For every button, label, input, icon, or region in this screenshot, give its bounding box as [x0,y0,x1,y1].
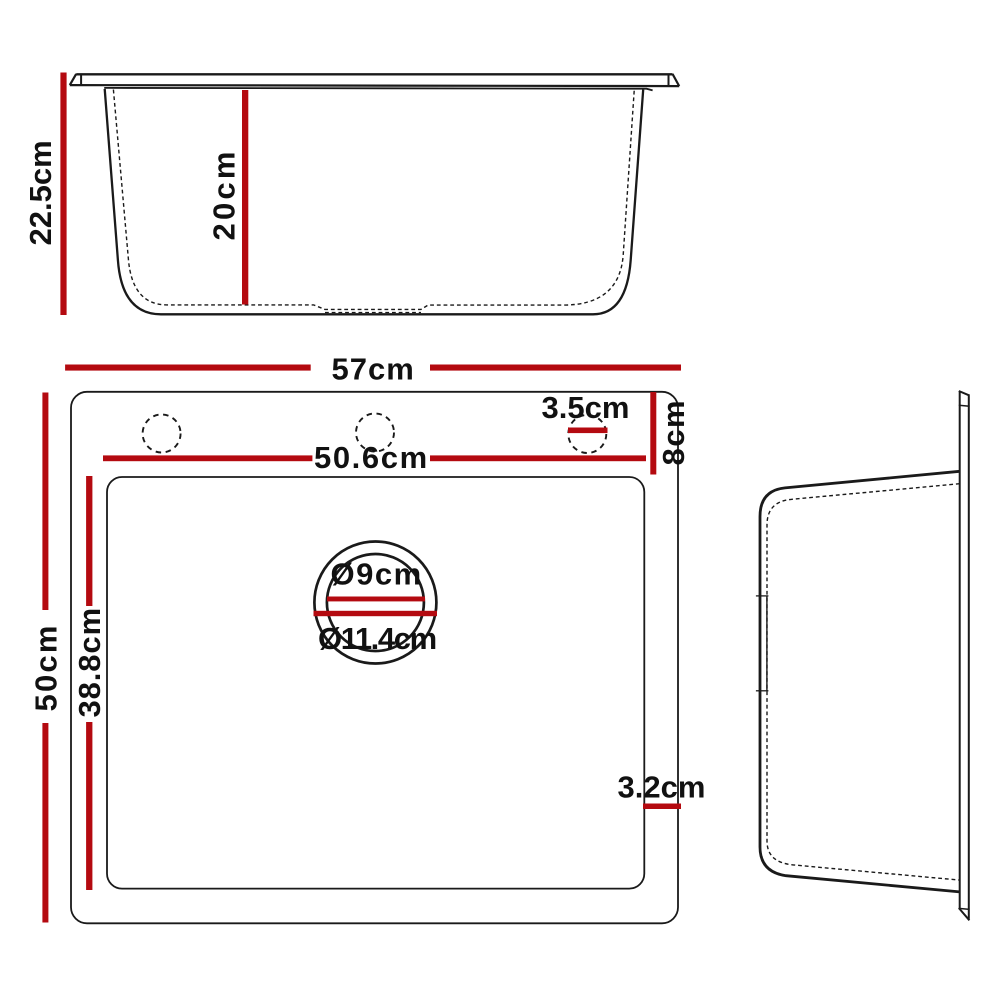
svg-text:50.6cm: 50.6cm [314,440,429,475]
svg-text:57cm: 57cm [332,352,415,387]
svg-text:38.8cm: 38.8cm [72,607,107,718]
svg-text:22.5cm: 22.5cm [23,140,58,245]
svg-text:20cm: 20cm [207,148,242,240]
svg-text:Ø9cm: Ø9cm [331,556,423,591]
svg-text:3.2cm: 3.2cm [618,769,706,804]
svg-text:50cm: 50cm [29,623,64,711]
svg-text:3.5cm: 3.5cm [542,390,630,425]
svg-text:Ø11.4cm: Ø11.4cm [318,621,436,656]
svg-text:8cm: 8cm [656,399,691,466]
